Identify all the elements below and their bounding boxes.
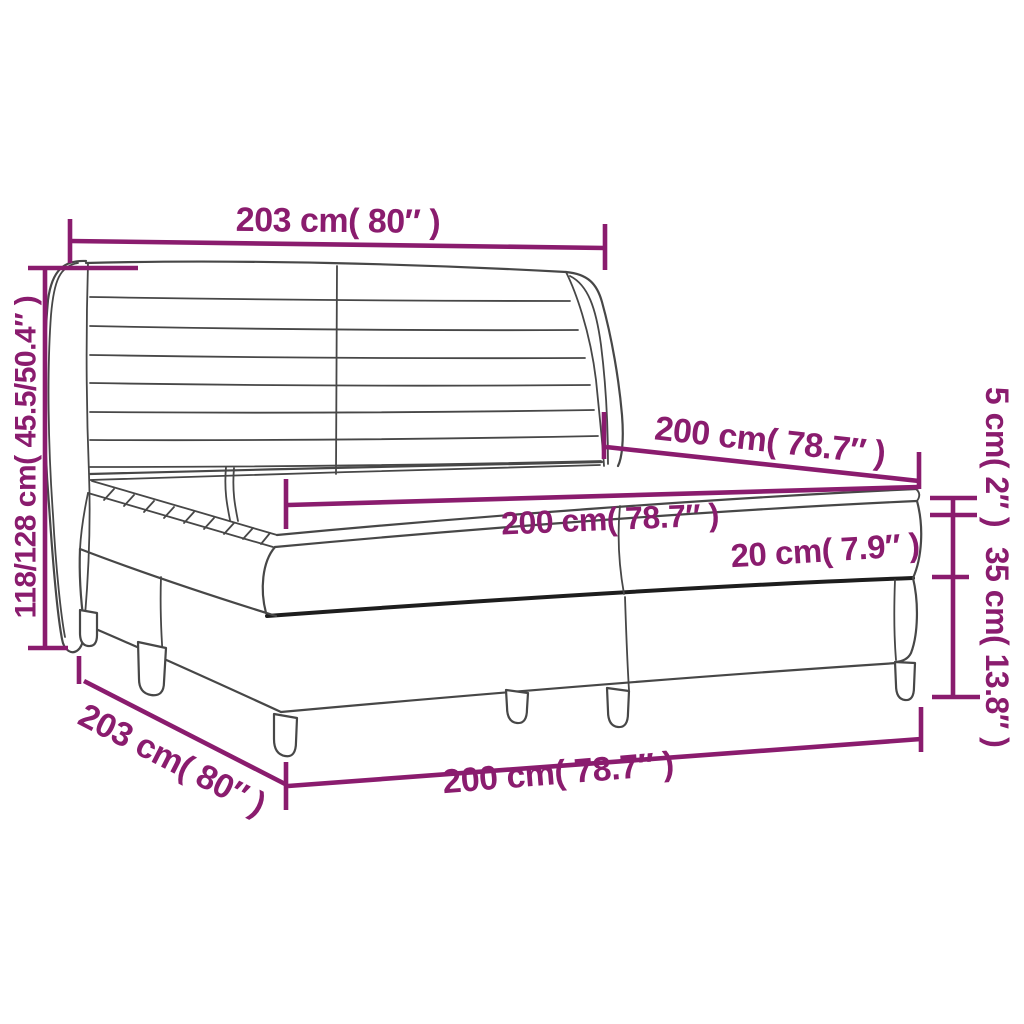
slat-dashes — [104, 489, 270, 544]
headboard-left-wing — [44, 261, 89, 652]
leg-front-center-right — [607, 688, 629, 727]
dim-frame-depth: 203 cm( 80″ ) — [72, 656, 287, 824]
box-front-bottom-edge — [281, 663, 897, 712]
dim-bed-depth: 200 cm( 78.7″ ) — [604, 409, 919, 489]
box-right-edge — [896, 578, 917, 662]
box-left-bottom-edge — [84, 624, 281, 712]
dim-box-height-label: 35 cm( 13.8″ ) — [979, 547, 1015, 747]
leg-front-left — [274, 714, 297, 756]
left-wing-seam — [49, 263, 78, 637]
dim-total-height: 118/128 cm( 45.5/50.4″ ) — [10, 268, 139, 648]
leg-front-right — [895, 662, 915, 700]
headboard-center-seam — [336, 266, 337, 474]
box-right-seam — [894, 580, 896, 660]
headboard — [86, 262, 602, 480]
dimension-annotations: 203 cm( 80″ ) 118/128 cm( 45.5/50.4″ ) 2… — [10, 201, 1016, 824]
box-front-seam — [625, 597, 629, 690]
leg-back-left — [80, 610, 97, 646]
channel-line — [90, 436, 598, 440]
bed-legs — [80, 610, 915, 756]
dim-right-heights: 5 cm( 2″ ) 35 cm( 13.8″ ) — [930, 387, 1015, 747]
leg-left-side — [138, 642, 166, 695]
channel-line — [90, 326, 578, 330]
bed-diagram-canvas: 203 cm( 80″ ) 118/128 cm( 45.5/50.4″ ) 2… — [0, 0, 1024, 1024]
leg-front-middle — [506, 690, 528, 723]
dim-mattress-height-label: 20 cm( 7.9″ ) — [730, 526, 921, 574]
dim-topper-height-label: 5 cm( 2″ ) — [979, 387, 1015, 527]
channel-line — [90, 297, 570, 301]
dim-mattress-width-label: 200 cm( 78.7″ ) — [500, 496, 719, 541]
dim-headboard-width: 203 cm( 80″ ) — [70, 201, 605, 270]
left-wing-inner-edge — [85, 263, 90, 616]
dim-frame-width: 200 cm( 78.7″ ) — [288, 707, 921, 801]
bed-drawing — [44, 261, 921, 756]
mattress-box-boundary — [267, 578, 913, 616]
channel-line — [90, 410, 594, 413]
mattress-left-corner — [263, 547, 275, 613]
slat-rail-top — [92, 481, 277, 535]
slat-rail-bottom — [88, 493, 273, 547]
channel-line — [90, 383, 590, 386]
dim-frame-width-label: 200 cm( 78.7″ ) — [441, 745, 675, 801]
channel-line — [90, 355, 585, 358]
box-spring-base — [80, 493, 917, 712]
box-left-top-edge — [80, 549, 276, 616]
topper-right-cap — [916, 489, 919, 501]
dim-total-height-label: 118/128 cm( 45.5/50.4″ ) — [10, 296, 43, 619]
box-back-left-edge-upper — [80, 493, 88, 549]
headboard-top-edge — [86, 262, 566, 272]
dim-headboard-width-label: 203 cm( 80″ ) — [236, 201, 441, 241]
dimension-diagram: 203 cm( 80″ ) 118/128 cm( 45.5/50.4″ ) 2… — [0, 0, 1024, 1024]
